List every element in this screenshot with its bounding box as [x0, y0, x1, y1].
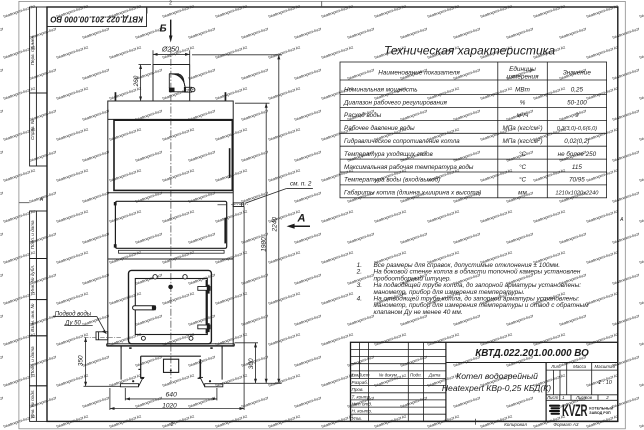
svg-text:Справ. №: Справ. № [30, 119, 35, 140]
svg-text:0,02(0,2): 0,02(0,2) [564, 138, 589, 145]
svg-text:Температура воды (вход/выход): Температура воды (вход/выход) [344, 176, 440, 184]
svg-text:Взам. инв. №: Взам. инв. № [30, 303, 35, 331]
svg-text:1980: 1980 [260, 237, 267, 252]
svg-text:КОТЕЛЬНЫЙ: КОТЕЛЬНЫЙ [589, 406, 613, 410]
svg-text:Котел водогрейный: Котел водогрейный [456, 371, 538, 381]
svg-text:МПа (кгс/см2): МПа (кгс/см2) [502, 124, 542, 132]
svg-text:см. п. 2: см. п. 2 [290, 180, 312, 187]
svg-text:А: А [297, 212, 306, 224]
svg-text:115: 115 [572, 164, 583, 171]
svg-text:300: 300 [248, 358, 255, 369]
svg-text:Ø250: Ø250 [161, 47, 179, 54]
svg-text:ЗАВОД РЗП: ЗАВОД РЗП [589, 411, 611, 415]
svg-text:КВТД.022.201.00.000 ВО: КВТД.022.201.00.000 ВО [50, 15, 143, 24]
svg-text:Дата: Дата [428, 373, 441, 378]
svg-text:Инв. № подл.: Инв. № подл. [30, 389, 35, 418]
svg-text:2: 2 [171, 422, 174, 428]
svg-text:Максимальная рабочая температу: Максимальная рабочая температура воды [344, 163, 474, 171]
svg-text:2: 2 [169, 0, 172, 6]
svg-text:КВТД.022.201.00.000 ВО: КВТД.022.201.00.000 ВО [475, 348, 589, 359]
svg-text:3.: 3. [357, 282, 362, 289]
svg-text:Расход воды: Расход воды [344, 111, 382, 119]
svg-text:мм: мм [518, 190, 527, 197]
svg-text:1210х1020х2240: 1210х1020х2240 [555, 191, 599, 197]
svg-text:Подп. и дата: Подп. и дата [30, 346, 35, 375]
svg-text:Масса: Масса [573, 364, 587, 369]
svg-text:Нач. отд.: Нач. отд. [352, 402, 373, 407]
svg-text:Единицы: Единицы [509, 65, 536, 73]
svg-text:Утв.: Утв. [352, 416, 362, 421]
svg-text:измерения: измерения [507, 73, 540, 80]
svg-text:Лист: Лист [357, 373, 370, 378]
svg-text:Подп.: Подп. [410, 373, 422, 378]
svg-text:70/95: 70/95 [569, 177, 585, 184]
svg-text:°С: °С [519, 163, 527, 171]
svg-text:Копировал: Копировал [504, 422, 527, 427]
svg-text:1 : 10: 1 : 10 [598, 380, 613, 386]
svg-text:Подп. и дата: Подп. и дата [30, 220, 35, 249]
svg-text:4.: 4. [357, 296, 362, 303]
svg-text:Диапазон рабочего регулировани: Диапазон рабочего регулирования [343, 98, 447, 106]
svg-text:2240: 2240 [271, 217, 278, 233]
svg-text:0,3(3,0)-0,6(6,0): 0,3(3,0)-0,6(6,0) [557, 126, 598, 132]
svg-text:А: А [39, 197, 44, 203]
svg-text:Лит.: Лит. [550, 364, 561, 369]
svg-text:260: 260 [133, 75, 140, 87]
svg-text:Номинальная мощность: Номинальная мощность [344, 86, 418, 93]
svg-text:Пров.: Пров. [352, 387, 364, 392]
svg-text:Наименование показателя: Наименование показателя [378, 70, 460, 77]
svg-text:Инв. № дубл.: Инв. № дубл. [30, 265, 35, 293]
svg-text:Перв. примен.: Перв. примен. [30, 35, 35, 66]
svg-text:Б: Б [159, 23, 166, 34]
svg-text:Температура уходящих газов: Температура уходящих газов [344, 150, 433, 158]
svg-text:МПа (кгс/см2): МПа (кгс/см2) [502, 137, 542, 145]
svg-text:клапаном Ду не менее 40 мм.: клапаном Ду не менее 40 мм. [374, 309, 463, 316]
svg-text:350: 350 [77, 355, 84, 366]
svg-text:2.: 2. [356, 269, 362, 276]
svg-text:50-100: 50-100 [567, 99, 587, 106]
svg-text:Лист: Лист [546, 395, 559, 400]
svg-text:1020: 1020 [162, 403, 177, 410]
svg-text:Рабочее давление воды: Рабочее давление воды [344, 124, 415, 132]
svg-text:МВт: МВт [515, 86, 530, 93]
svg-text:Значение: Значение [563, 70, 591, 77]
svg-text:Габариты котла (длинна х ширин: Габариты котла (длинна х ширина х высота… [344, 189, 481, 197]
svg-text:Heatexpert КВр-0,25 КБД(К): Heatexpert КВр-0,25 КБД(К) [442, 383, 551, 393]
svg-text:Н. контр.: Н. контр. [352, 409, 373, 414]
svg-text:2: 2 [605, 395, 609, 400]
svg-text:%: % [520, 99, 526, 106]
svg-text:№ докум.: № докум. [379, 373, 398, 378]
svg-text:°С: °С [519, 176, 527, 184]
svg-text:640: 640 [166, 392, 178, 399]
svg-text:°С: °С [519, 150, 527, 158]
svg-text:Гидравлическое сопротивление к: Гидравлическое сопротивление котла [344, 137, 460, 145]
svg-text:Т. контр.: Т. контр. [352, 394, 372, 399]
svg-text:Масштаб: Масштаб [594, 364, 615, 369]
svg-text:KVZR: KVZR [562, 400, 588, 420]
svg-text:9: 9 [575, 112, 579, 119]
svg-text:м3/ч: м3/ч [517, 111, 530, 119]
svg-text:0,25: 0,25 [571, 86, 584, 93]
svg-text:Разраб.: Разраб. [352, 380, 369, 385]
svg-text:Формат А3: Формат А3 [553, 422, 579, 427]
svg-text:Техническая характеристика: Техническая характеристика [384, 43, 556, 57]
svg-text:А: А [619, 217, 624, 223]
svg-text:не более 250: не более 250 [558, 150, 597, 158]
